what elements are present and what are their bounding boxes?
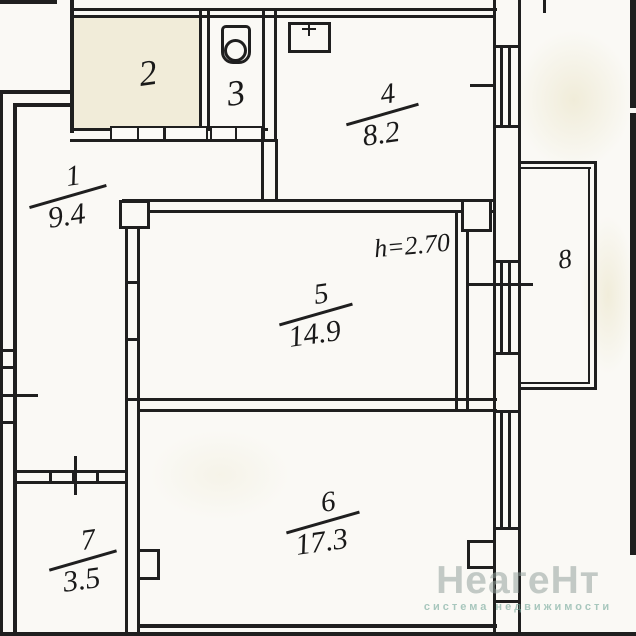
room-number: 3 xyxy=(202,71,270,116)
floor-plan: 1 9.4 2 3 4 8.2 5 14.9 6 17.3 7 3.5 8 h=… xyxy=(0,0,636,636)
room-number: 2 xyxy=(111,50,185,95)
wall-line xyxy=(125,398,497,401)
room-1-label: 1 9.4 xyxy=(24,158,113,236)
wall-line xyxy=(543,0,546,13)
ceiling-height-note: h=2.70 xyxy=(373,228,451,265)
wall-line xyxy=(13,103,73,107)
wall-line xyxy=(274,8,277,141)
wall-line xyxy=(466,210,469,410)
wall-line xyxy=(0,349,17,352)
wall-line xyxy=(508,413,511,530)
wall-line xyxy=(70,8,497,11)
wall-line xyxy=(470,84,495,87)
wall-line xyxy=(0,421,17,424)
room-area: 17.3 xyxy=(282,522,361,562)
wall-line xyxy=(0,394,38,397)
wall-line xyxy=(630,113,636,555)
wall-line xyxy=(137,409,497,412)
wall-line xyxy=(96,470,99,484)
wall-line xyxy=(493,410,521,413)
wall-line xyxy=(70,0,74,133)
wall-line xyxy=(630,0,636,108)
room-number: 1 xyxy=(32,157,115,197)
room-4-label: 4 8.2 xyxy=(341,76,425,154)
wall-line xyxy=(500,413,503,530)
wall-line xyxy=(122,199,493,202)
room-3-label: 3 xyxy=(194,72,262,117)
room-number: 6 xyxy=(289,483,368,522)
wall-line xyxy=(125,338,140,341)
room-area: 14.9 xyxy=(275,314,354,354)
wall-line xyxy=(493,125,521,128)
wall-line xyxy=(49,470,52,484)
wall-line xyxy=(520,167,591,169)
wall-line xyxy=(137,624,497,628)
wall-line xyxy=(74,456,77,495)
wall-line xyxy=(588,167,590,384)
wall-line xyxy=(508,48,511,128)
aged-paper-patch xyxy=(515,30,633,170)
wall-line xyxy=(0,632,636,636)
wall-pier xyxy=(261,139,278,202)
wall-pier xyxy=(119,200,150,229)
wall-line xyxy=(0,90,3,636)
wall-line xyxy=(493,527,521,530)
wall-line xyxy=(520,161,597,164)
wall-line xyxy=(0,0,57,4)
room-8-label: 8 xyxy=(534,244,579,277)
wall-line xyxy=(125,281,140,284)
door-leaf-divider xyxy=(235,128,237,139)
wall-line xyxy=(493,45,521,48)
wall-line xyxy=(0,90,74,94)
door-leaf-divider xyxy=(137,128,139,139)
room-area: 9.4 xyxy=(25,196,108,237)
wall-line xyxy=(518,0,521,636)
wall-line xyxy=(455,210,458,410)
room-2-label: 2 xyxy=(103,51,177,96)
wall-line xyxy=(125,201,128,636)
wall-line xyxy=(493,260,521,263)
wall-line xyxy=(500,263,503,355)
room-5-label: 5 14.9 xyxy=(274,276,359,354)
plus-mark-icon xyxy=(302,28,316,30)
wall-pier xyxy=(461,199,492,232)
wall-line xyxy=(74,15,495,18)
room-6-label: 6 17.3 xyxy=(281,484,366,562)
wall-line xyxy=(520,382,590,384)
wall-pier xyxy=(137,549,160,580)
room-number: 4 xyxy=(349,75,427,114)
wall-line xyxy=(493,352,521,355)
wall-line xyxy=(500,48,503,128)
room-number: 7 xyxy=(52,521,125,559)
room-7-label: 7 3.5 xyxy=(44,522,123,599)
room-number: 8 xyxy=(542,243,587,276)
wall-line xyxy=(122,210,493,213)
wall-line xyxy=(13,103,17,636)
wall-line xyxy=(520,387,597,390)
wall-line xyxy=(508,263,511,355)
wall-line xyxy=(0,366,17,369)
wall-line xyxy=(468,283,533,286)
sink-bowl-icon xyxy=(224,39,247,62)
door-opening xyxy=(164,126,208,141)
aged-paper-patch xyxy=(150,430,290,520)
wall-line xyxy=(594,161,597,390)
wall-pier xyxy=(467,540,496,569)
wall-line xyxy=(493,600,521,603)
room-number: 5 xyxy=(282,275,361,314)
